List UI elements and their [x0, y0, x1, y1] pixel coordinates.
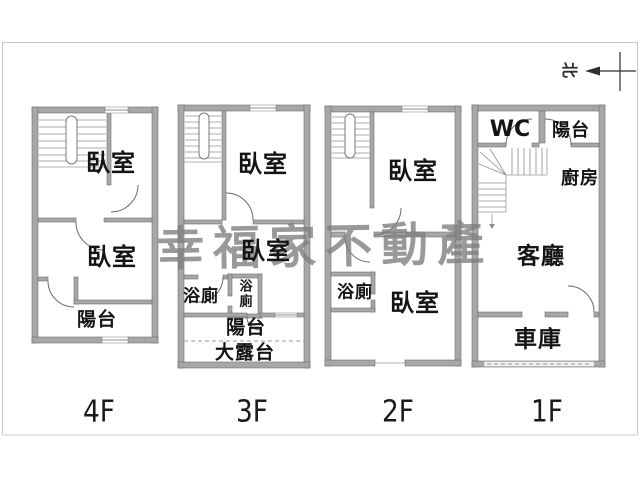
room-label-2f-bedroom2: 臥室	[390, 291, 440, 315]
room-label-3f-bath: 浴廁	[183, 289, 219, 306]
room-label-3f-bedroom1: 臥室	[238, 152, 288, 176]
room-label-1f-balcony: 陽台	[552, 122, 590, 140]
room-label-3f-terrace: 大露台	[215, 344, 275, 363]
room-label-2f-bath: 浴廁	[337, 285, 373, 302]
room-label-2f-bedroom1: 臥室	[388, 159, 438, 183]
floorplan-sheet: 幸福家不動產 北 臥室 臥室 陽台 4F 臥室 臥室 浴廁 浴廁 陽台 大露台 …	[0, 0, 640, 480]
north-label: 北	[559, 62, 583, 78]
floor-label-3f: 3F	[236, 395, 268, 430]
north-arrow-icon	[585, 52, 636, 91]
room-label-1f-living: 客廳	[517, 246, 565, 269]
room-label-4f-bedroom1: 臥室	[86, 151, 136, 175]
room-label-4f-bedroom2: 臥室	[87, 245, 137, 269]
room-label-3f-balcony: 陽台	[226, 319, 266, 338]
staircase-2f	[331, 114, 370, 158]
floor-label-1f: 1F	[531, 395, 563, 430]
room-label-3f-bedroom2: 臥室	[241, 239, 291, 263]
room-label-1f-kitchen: 廚房	[561, 170, 599, 188]
room-label-1f-wc: WC	[490, 119, 530, 141]
watermark: 幸福家不動產	[156, 205, 493, 280]
room-label-3f-bath-small: 浴廁	[238, 279, 251, 309]
staircase-3f	[184, 113, 222, 162]
room-label-1f-garage: 車庫	[514, 329, 562, 352]
room-label-4f-balcony: 陽台	[77, 311, 117, 330]
doors-1f	[506, 119, 594, 312]
floor-label-4f: 4F	[83, 395, 115, 430]
floor-label-2f: 2F	[382, 395, 414, 430]
garage-door-1f	[484, 362, 594, 367]
